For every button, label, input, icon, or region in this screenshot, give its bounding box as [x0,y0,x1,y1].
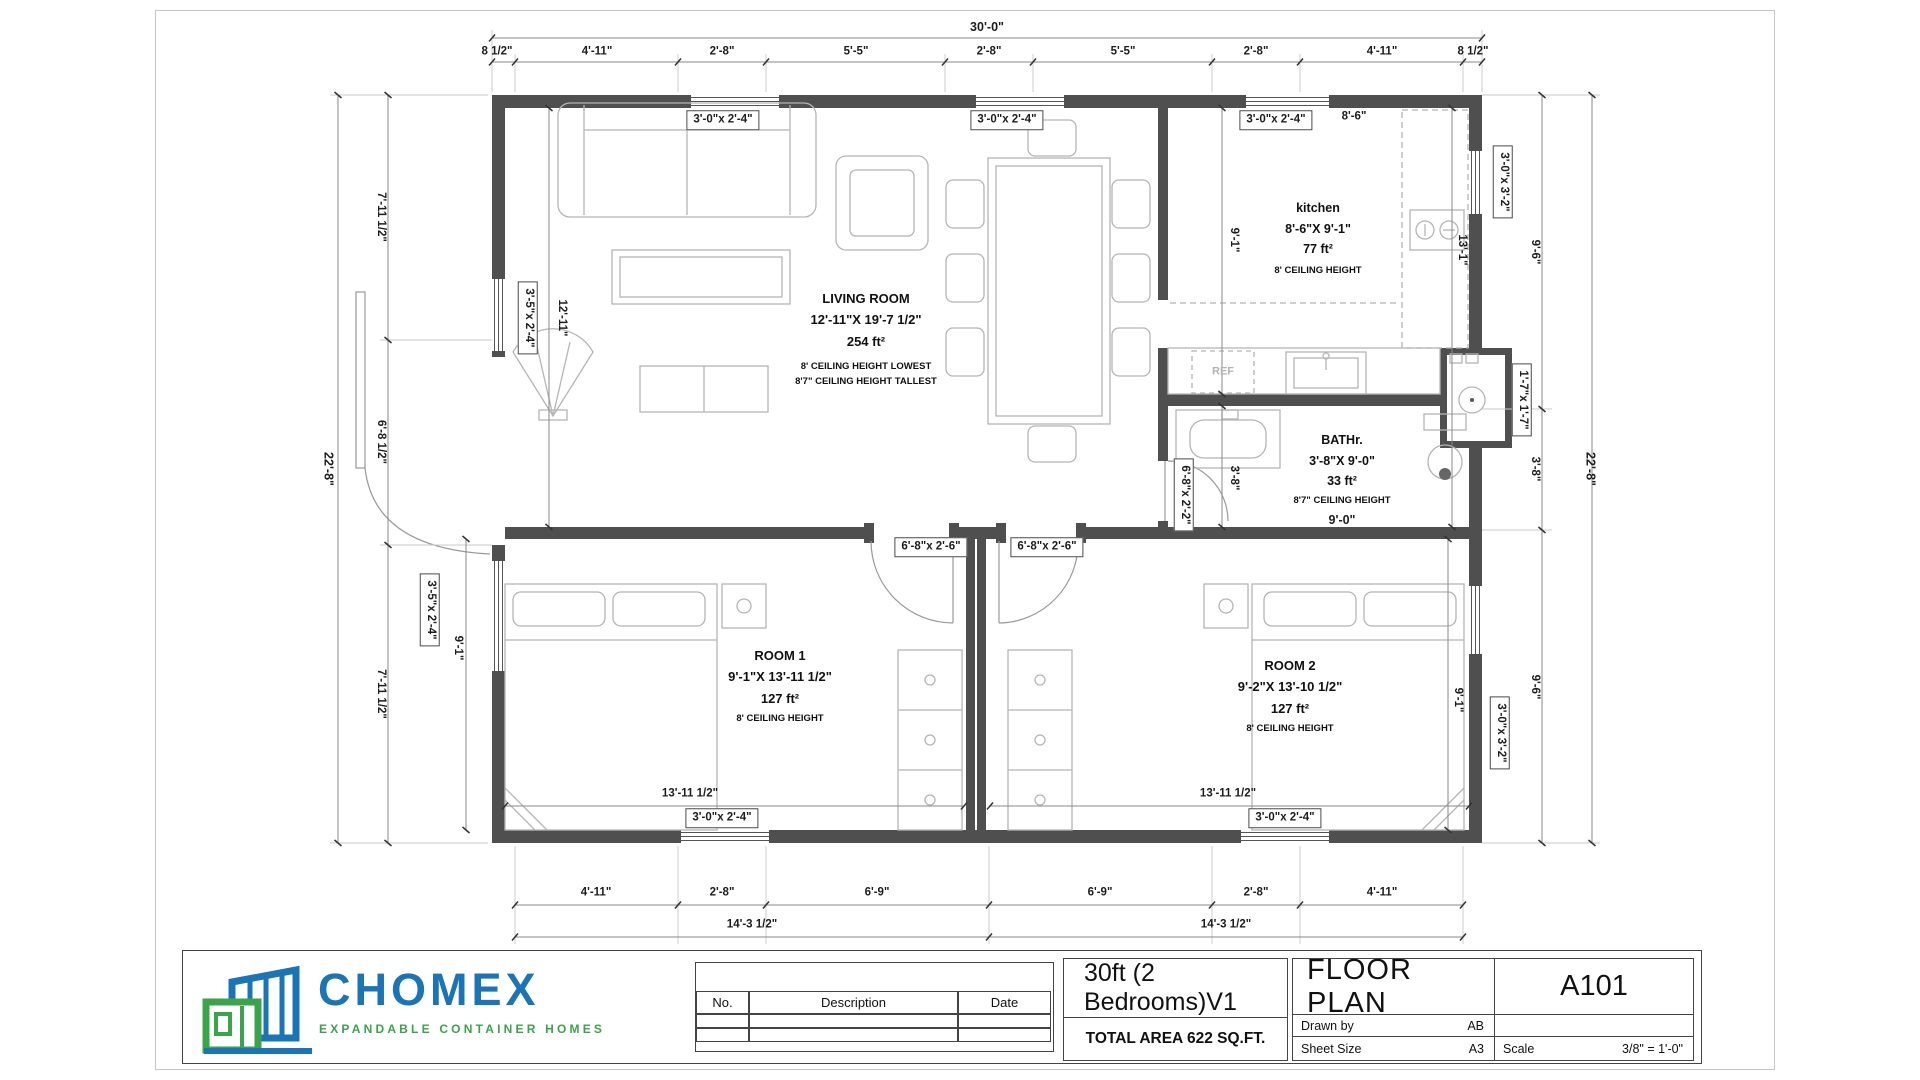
room-note: 8' CEILING HEIGHT [1274,264,1361,278]
room-size: 9'-1"X 13'-11 1/2" [728,666,832,687]
rev-empty-cell [696,1028,749,1042]
room-area: 77 ft² [1274,239,1361,260]
sheet-size-value: A3 [1469,1042,1484,1056]
dimension-extension-lines [330,30,1600,944]
dim-bottom-seg: 4'-11" [1367,887,1398,899]
dim-top-seg: 2'-8" [977,46,1002,58]
scale-value: 3/8" = 1'-0" [1622,1042,1683,1056]
dim-living-height: 12'-11" [555,300,567,337]
window-right-room2 [1469,581,1482,659]
room-area: 33 ft² [1293,471,1390,492]
window-label: 3'-0"x 2'-4" [686,110,759,130]
window-left-room1 [492,556,505,676]
dim-room2-depth: 9'-1" [1451,688,1463,713]
project-title-box: 30ft (2 Bedrooms)V1 TOTAL AREA 622 SQ.FT… [1063,958,1288,1061]
window-label: 3'-0"x 2'-4" [1239,110,1312,130]
room-size: 12'-11"X 19'-7 1/2" [795,309,937,330]
window-bottom-room2 [1236,830,1334,843]
rev-empty-cell [958,1028,1051,1042]
room-size: 8'-6"X 9'-1" [1274,219,1361,240]
rev-col-no: No. [696,991,749,1014]
drawn-by-label: Drawn by [1301,1019,1354,1033]
kitchen-label: kitchen 8'-6"X 9'-1" 77 ft² 8' CEILING H… [1274,198,1361,278]
coffee-table [612,250,790,304]
room-note: 8' CEILING HEIGHT [1238,722,1343,736]
dimension-lines [338,38,1592,937]
window-left-living [492,274,505,356]
dim-left-overall: 22'-8" [322,452,335,486]
window-top-living-2 [971,95,1069,108]
sheet-info-box: FLOOR PLAN A101 Drawn by AB Sheet Size A… [1292,958,1694,1061]
dim-right-seg: 3'-8" [1528,457,1540,482]
room-name: ROOM 2 [1238,655,1343,676]
wardrobe-room2 [1008,650,1072,830]
bath-label: BATHr. 3'-8"X 9'-0" 33 ft² 8'7" CEILING … [1293,430,1390,508]
room-name: LIVING ROOM [795,288,937,309]
kitchen-sink [1286,352,1366,394]
media-console [640,366,768,412]
dim-right-overall: 22'-8" [1584,452,1597,486]
rev-col-description: Description [749,991,958,1014]
drawn-by-value: AB [1467,1019,1484,1033]
dim-left-seg: 7'-11 1/2" [374,669,386,719]
dim-left-seg: 7'-11 1/2" [374,192,386,242]
dim-top-seg: 4'-11" [1367,46,1398,58]
rev-empty-cell [958,1014,1051,1028]
dim-room2-width: 13'-11 1/2" [1200,788,1256,800]
nightstand-room2 [1204,584,1248,628]
refrigerator-label: REF [1212,367,1234,378]
rev-empty-cell [749,1014,958,1028]
dim-room1-width: 13'-11 1/2" [662,788,718,800]
dim-top-seg: 4'-11" [582,46,613,58]
room-area: 254 ft² [795,331,937,352]
room-note: 8'7" CEILING HEIGHT [1293,494,1390,508]
dim-kitchen-depth: 9'-1" [1227,228,1239,253]
total-area: TOTAL AREA 622 SQ.FT. [1064,1018,1287,1060]
room-size: 9'-2"X 13'-10 1/2" [1238,676,1343,697]
dim-bottom-mid: 14'-3 1/2" [1201,919,1251,931]
dim-kitchen-width: 8'-6" [1342,111,1367,123]
project-title: 30ft (2 Bedrooms)V1 [1064,959,1287,1018]
dining-table [946,120,1150,462]
dim-bottom-seg: 4'-11" [581,887,612,899]
room-area: 127 ft² [728,688,832,709]
dim-bottom-seg: 6'-9" [1088,887,1113,899]
window-label: 3'-0"x 2'-4" [685,808,758,828]
wardrobe-room1 [898,650,962,830]
dim-top-seg: 8 1/2" [1457,46,1488,58]
room2-label: ROOM 2 9'-2"X 13'-10 1/2" 127 ft² 8' CEI… [1238,655,1343,737]
window-label: 3'-0"x 3'-2" [1493,145,1513,218]
shower-size-label: 1'-7"x 1'-7" [1512,363,1532,436]
window-label: 3'-5"x 2'-4" [518,281,538,354]
window-label: 3'-0"x 3'-2" [1490,696,1510,769]
living-room-label: LIVING ROOM 12'-11"X 19'-7 1/2" 254 ft² … [795,288,937,389]
sheet-number: A101 [1495,959,1693,1015]
dim-bottom-mid: 14'-3 1/2" [727,919,777,931]
dim-bath-width: 9'-0" [1329,514,1356,527]
room-name: ROOM 1 [728,645,832,666]
sheet-title: FLOOR PLAN [1293,959,1495,1015]
room-area: 127 ft² [1238,698,1343,719]
rev-col-date: Date [958,991,1051,1014]
window-bottom-room1 [676,830,774,843]
room-note: 8'7" CEILING HEIGHT TALLEST [795,375,937,389]
dim-right-seg: 9'-6" [1528,240,1540,265]
dim-top-seg: 8 1/2" [481,46,512,58]
door-label: 6'-8"x 2'-2" [1174,458,1194,531]
dim-bath-depth: 3'-8" [1227,466,1239,491]
dim-top-seg: 2'-8" [1244,46,1269,58]
window-label: 3'-0"x 2'-4" [1248,808,1321,828]
door-label: 6'-8"x 2'-6" [894,537,967,557]
scale-label: Scale [1503,1042,1534,1056]
dim-bottom-seg: 2'-8" [1244,887,1269,899]
window-label: 3'-0"x 2'-4" [970,110,1043,130]
nightstand-room1 [722,584,766,628]
dim-bottom-seg: 2'-8" [710,887,735,899]
dim-left-seg: 6'-8 1/2" [374,420,386,464]
dim-top-overall: 30'-0" [970,21,1004,34]
window-top-living-1 [686,95,784,108]
doors [356,292,1228,623]
chomex-logo-icon [198,960,318,1060]
armchair [836,156,928,250]
dim-top-seg: 2'-8" [710,46,735,58]
dim-bottom-seg: 6'-9" [865,887,890,899]
dim-kitchen-right: 13'-1" [1455,234,1467,265]
window-right-kitchen [1469,146,1482,219]
logo-wordmark: CHOMEX [318,964,540,1016]
room-note: 8' CEILING HEIGHT LOWEST [795,360,937,374]
dim-right-seg: 9'-6" [1528,675,1540,700]
window-top-kitchen [1241,95,1334,108]
dim-top-seg: 5'-5" [1111,46,1136,58]
drawing-sheet: 30'-0" 8 1/2" 4'-11" 2'-8" 5'-5" 2'-8" 5… [0,0,1920,1080]
room-note: 8' CEILING HEIGHT [728,712,832,726]
window-label: 3'-5"x 2'-4" [420,573,440,646]
revision-table: No. Description Date [695,962,1054,1052]
dim-room1-depth: 9'-1" [451,636,463,661]
logo-tagline: EXPANDABLE CONTAINER HOMES [319,1022,605,1036]
rev-empty-cell [749,1028,958,1042]
room-size: 3'-8"X 9'-0" [1293,451,1390,472]
rev-empty-cell [696,1014,749,1028]
room1-label: ROOM 1 9'-1"X 13'-11 1/2" 127 ft² 8' CEI… [728,645,832,727]
sheet-size-label: Sheet Size [1301,1042,1361,1056]
dim-top-seg: 5'-5" [844,46,869,58]
room-name: kitchen [1274,198,1361,219]
empty-meta-cell [1495,1015,1693,1037]
door-label: 6'-8"x 2'-6" [1010,537,1083,557]
room-name: BATHr. [1293,430,1390,451]
